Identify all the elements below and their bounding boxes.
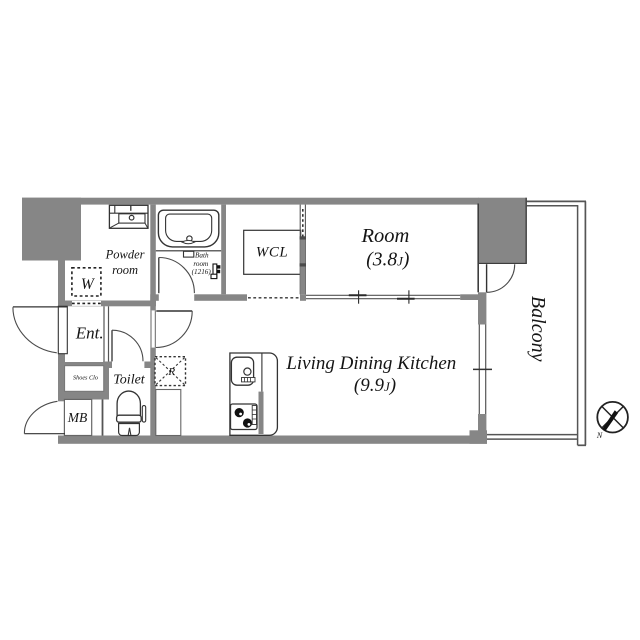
svg-text:R: R [167, 366, 175, 378]
svg-text:room: room [112, 263, 138, 277]
svg-text:room: room [193, 260, 208, 268]
svg-text:Shoes Clo: Shoes Clo [73, 375, 98, 382]
svg-text:(3.8J): (3.8J) [366, 250, 409, 271]
svg-text:(1216): (1216) [192, 268, 212, 276]
svg-text:WCL: WCL [256, 244, 288, 260]
svg-text:Toilet: Toilet [113, 373, 145, 388]
svg-text:(9.9J): (9.9J) [354, 375, 396, 396]
svg-text:W: W [81, 276, 96, 293]
svg-text:Balcony: Balcony [527, 296, 549, 362]
svg-text:Ent.: Ent. [75, 324, 104, 343]
svg-text:MB: MB [67, 410, 88, 425]
svg-text:Bath: Bath [195, 252, 209, 260]
svg-text:Living Dining Kitchen: Living Dining Kitchen [285, 353, 456, 374]
svg-text:Powder: Powder [105, 248, 145, 262]
svg-text:Room: Room [360, 225, 409, 247]
svg-text:N: N [596, 431, 603, 440]
